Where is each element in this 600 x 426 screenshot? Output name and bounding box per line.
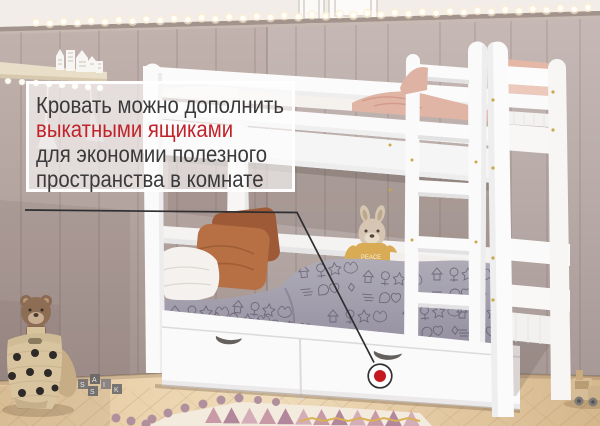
svg-text:S: S: [80, 382, 85, 389]
svg-text:K: K: [114, 387, 119, 394]
svg-text:A: A: [92, 377, 97, 384]
svg-text:I: I: [103, 382, 105, 389]
svg-text:S: S: [90, 389, 95, 396]
